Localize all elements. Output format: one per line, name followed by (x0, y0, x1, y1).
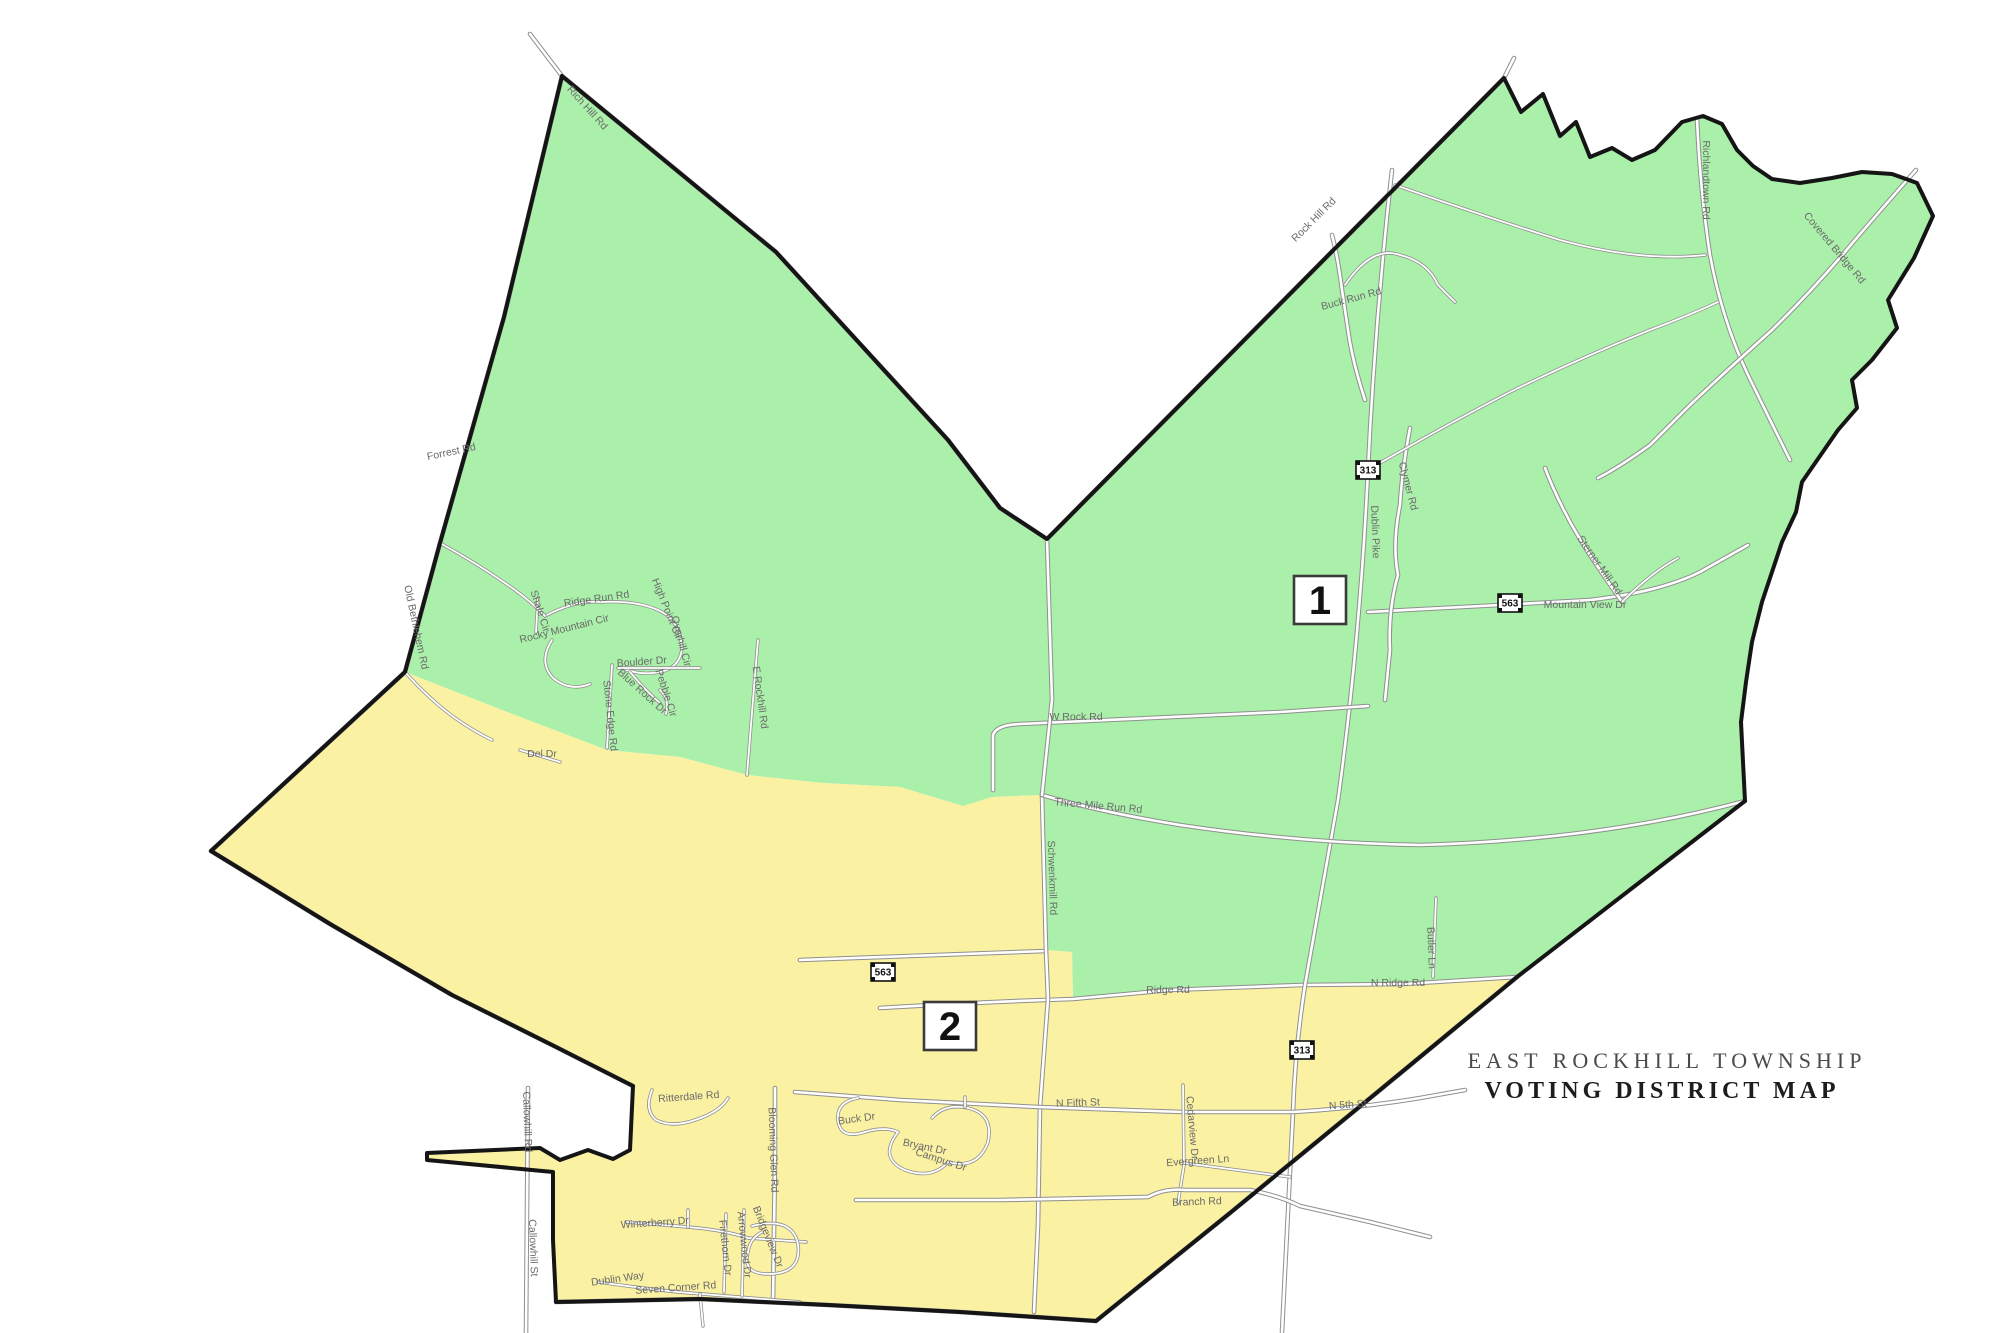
road-label: Callowhill St (526, 1219, 540, 1277)
road-label: N 5th St (1328, 1098, 1367, 1113)
road-label: Ridge Rd (1146, 984, 1190, 996)
district-label: 1 (1294, 576, 1346, 624)
road-label: Branch Rd (1172, 1195, 1222, 1209)
svg-text:313: 313 (1360, 466, 1377, 477)
route-shield: 313 (1356, 461, 1380, 479)
road-label: W Rock Rd (1049, 711, 1102, 723)
road-label: Dublin Pike (1368, 505, 1382, 559)
route-shield: 563 (1498, 594, 1522, 612)
voting-district-map-page: Forrest RdRich Hill RdRock Hill RdBuck R… (0, 0, 2000, 1333)
map-title-line1: EAST ROCKHILL TOWNSHIP (1468, 1048, 1867, 1073)
map-title-line2: VOTING DISTRICT MAP (1484, 1078, 1839, 1104)
svg-text:313: 313 (1294, 1046, 1311, 1057)
route-shield: 313 (1290, 1041, 1314, 1059)
district-label: 2 (924, 1002, 976, 1050)
road-label: Del Dr (527, 748, 557, 760)
district-number: 1 (1309, 579, 1331, 623)
svg-text:563: 563 (1502, 599, 1519, 610)
road-label: Callowhill Rd (520, 1091, 534, 1152)
road-label: N Ridge Rd (1371, 977, 1425, 989)
road-label: Mountain View Dr (1544, 599, 1627, 611)
map-canvas: Forrest RdRich Hill RdRock Hill RdBuck R… (0, 0, 2000, 1333)
district-number: 2 (939, 1005, 961, 1049)
svg-text:563: 563 (875, 968, 892, 979)
road-label: Richlandtown Rd (1700, 140, 1712, 220)
road-label: N Fifth St (1056, 1096, 1100, 1110)
road-label: Butler Ln (1424, 927, 1437, 970)
route-shield: 563 (871, 963, 895, 981)
